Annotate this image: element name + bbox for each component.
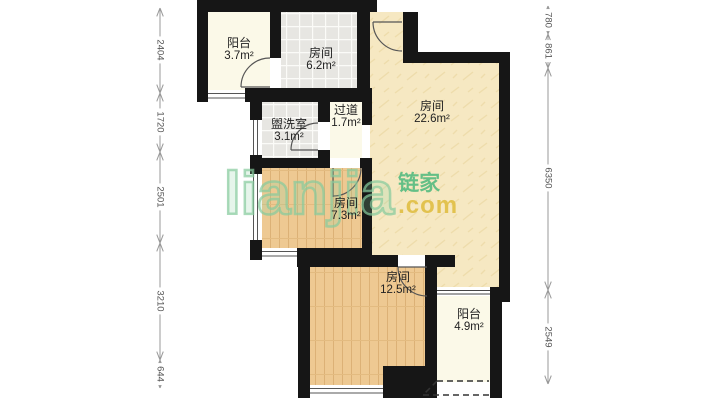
dim-label-left-3210: 3210 [155, 287, 166, 314]
dim-label-left-644: 644 [155, 363, 166, 385]
floorplan-page: lianjia 链家 .com 阳台 3.7m² 房间 6.2m² 盥洗室 3.… [0, 0, 710, 400]
dim-label-right-780: 780 [543, 9, 554, 31]
dim-label-left-1720: 1720 [155, 108, 166, 135]
dim-label-left-2501: 2501 [155, 183, 166, 210]
dim-label-right-2549: 2549 [543, 323, 554, 350]
dim-label-right-861: 861 [543, 40, 554, 62]
dim-label-right-6350: 6350 [543, 164, 554, 191]
floorplan-canvas [0, 0, 710, 400]
dim-label-left-2404: 2404 [155, 36, 166, 63]
